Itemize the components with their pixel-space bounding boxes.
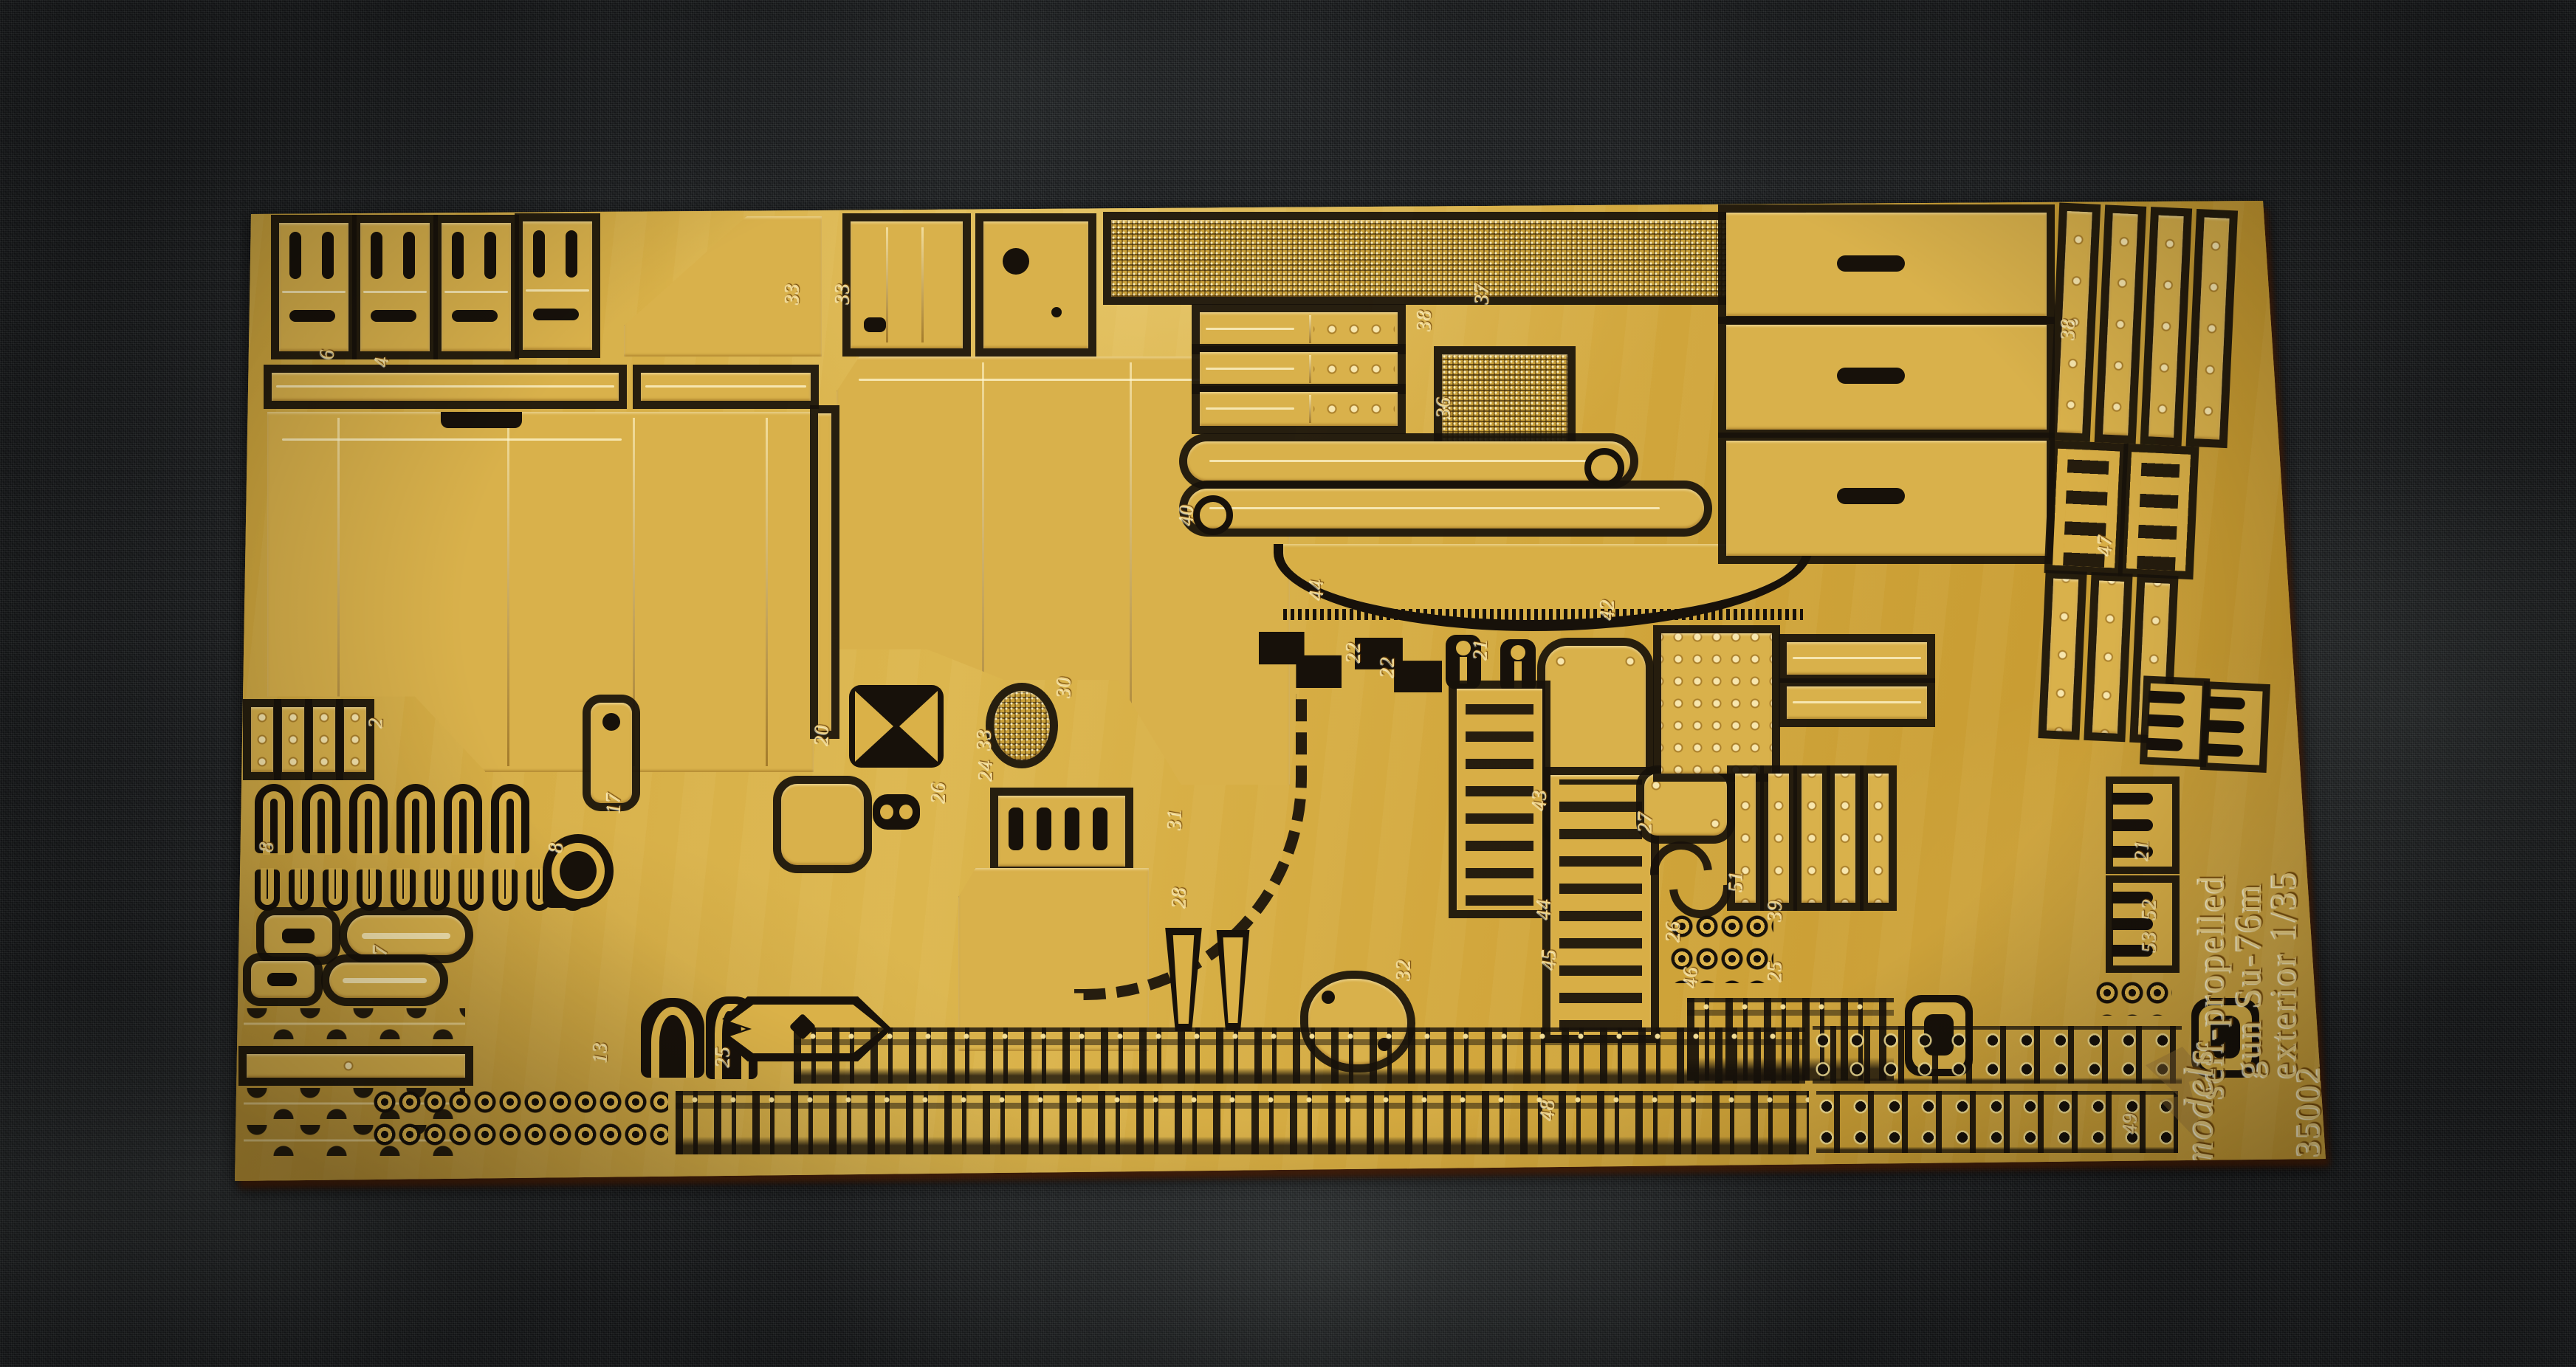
part-number-label: 8 — [255, 841, 278, 853]
part-number-label: 40 — [1175, 504, 1198, 526]
part-number-label: 20 — [811, 724, 834, 746]
part-number-label: 49 — [2119, 1112, 2142, 1134]
part-number-label: 26 — [1662, 920, 1685, 942]
part-number-label: 8 — [545, 842, 568, 853]
part-number-label: 45 — [1538, 948, 1561, 970]
part-number-label: 33 — [973, 729, 996, 750]
part-number-label: 28 — [1168, 886, 1191, 908]
part-number-label: 53 — [2138, 931, 2161, 952]
part-number-label: 21 — [1469, 638, 1492, 660]
part-number-label: 42 — [1596, 599, 1619, 620]
pe-fret-sheet: self-propelled gun Su-76m exterior 1/35 … — [0, 0, 2576, 1367]
part-number-label: 44 — [1305, 579, 1328, 600]
part-number-label: 24 — [975, 760, 997, 781]
part-number-label: 27 — [1634, 811, 1657, 833]
part-number-label: 4 — [371, 357, 394, 368]
part-number-layer: 6433332788172030332624312832251338373640… — [0, 0, 2576, 1367]
part-number-label: 33 — [781, 283, 804, 304]
part-number-label: 25 — [712, 1046, 735, 1067]
part-number-label: 47 — [2094, 534, 2117, 556]
part-number-label: 25 — [1764, 960, 1787, 982]
part-number-label: 39 — [1764, 900, 1787, 921]
part-number-label: 6 — [316, 349, 339, 360]
part-number-label: 33 — [831, 283, 854, 304]
part-number-label: 38 — [1413, 309, 1436, 331]
part-number-label: 7 — [369, 945, 392, 956]
part-number-label: 52 — [2138, 898, 2161, 920]
photo-canvas: { "photo": { "kind": "photo-etched brass… — [0, 0, 2576, 1367]
part-number-label: 21 — [2131, 839, 2154, 861]
part-number-label: 36 — [1432, 396, 1455, 418]
pe-fret-wrapper: self-propelled gun Su-76m exterior 1/35 … — [0, 0, 2576, 1367]
part-number-label: 43 — [1528, 789, 1551, 810]
part-number-label: 38 — [2057, 318, 2080, 340]
part-number-label: 31 — [1164, 808, 1186, 830]
part-number-label: 37 — [1471, 283, 1494, 304]
part-number-label: 13 — [589, 1041, 612, 1063]
part-number-label: 44 — [1533, 898, 1556, 920]
part-number-label: 22 — [1342, 641, 1365, 663]
part-number-label: 32 — [1392, 959, 1415, 980]
part-number-label: 46 — [1680, 966, 1703, 988]
part-number-label: 22 — [1376, 656, 1399, 678]
part-number-label: 48 — [1536, 1099, 1559, 1120]
part-number-label: 17 — [602, 792, 625, 813]
part-number-label: 2 — [365, 717, 388, 729]
part-number-label: 30 — [1053, 676, 1076, 698]
part-number-label: 26 — [927, 782, 950, 803]
part-number-label: 51 — [1725, 870, 1748, 892]
